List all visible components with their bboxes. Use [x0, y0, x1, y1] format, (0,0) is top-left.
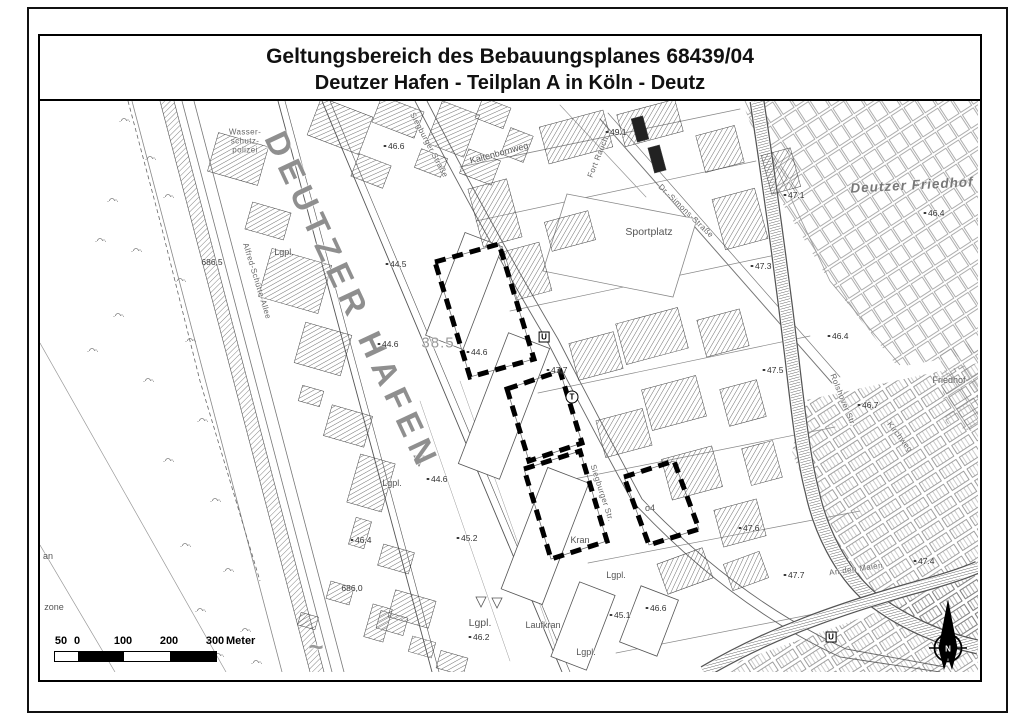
scale-mark: 300 [206, 635, 224, 647]
scale-segments [54, 651, 217, 662]
svg-text:N: N [945, 645, 951, 654]
map-content: N DEUTZER HAFENWasser-schutz-polizeiLgpl… [40, 101, 980, 680]
map-canvas: N [40, 101, 978, 672]
title-block: Geltungsbereich des Bebauungsplanes 6843… [40, 36, 980, 101]
scale-mark: 200 [160, 635, 178, 647]
scale-mark: 0 [74, 635, 80, 647]
scale-segment [124, 652, 170, 661]
plan-title-line1: Geltungsbereich des Bebauungsplanes 6843… [40, 43, 980, 70]
residential-area [730, 363, 978, 672]
scale-segment [78, 652, 124, 661]
scale-unit: Meter [226, 635, 255, 647]
scale-segment [170, 652, 216, 661]
tree-symbols [88, 119, 263, 665]
rhine-riverbank [40, 101, 344, 672]
scale-mark: 100 [114, 635, 132, 647]
plan-title-line2: Deutzer Hafen - Teilplan A in Köln - Deu… [40, 70, 980, 96]
scale-segment [55, 652, 78, 661]
scale-bar: 500100200300 Meter [54, 635, 274, 667]
map-frame: Geltungsbereich des Bebauungsplanes 6843… [38, 34, 982, 682]
scale-mark: 50 [55, 635, 67, 647]
plan-page: Geltungsbereich des Bebauungsplanes 6843… [0, 0, 1024, 724]
